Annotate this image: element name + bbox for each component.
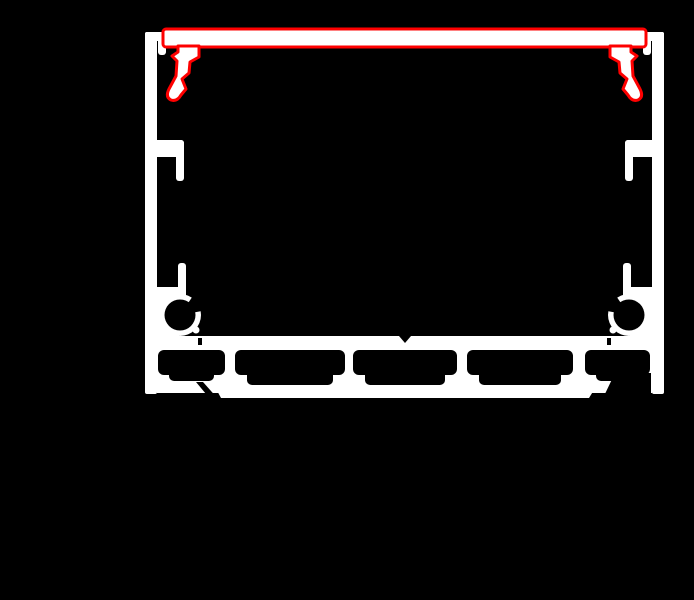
chamber-cavity-foot (169, 360, 214, 381)
chamber-cavity-foot (479, 360, 561, 385)
profile-cross-section-drawing (0, 0, 694, 600)
base-bottom-band (214, 385, 597, 398)
chamber-cavity-foot (247, 360, 333, 385)
screw-port-lip-right (610, 327, 617, 334)
platform-tick-right (607, 338, 611, 345)
platform-tick-left (198, 338, 202, 345)
chamber-cavity-foot (365, 360, 445, 385)
screw-port-lip-left (193, 327, 200, 334)
drawing-background (0, 0, 694, 600)
groove-hook-upper (176, 140, 184, 181)
cover-plate (163, 29, 646, 47)
